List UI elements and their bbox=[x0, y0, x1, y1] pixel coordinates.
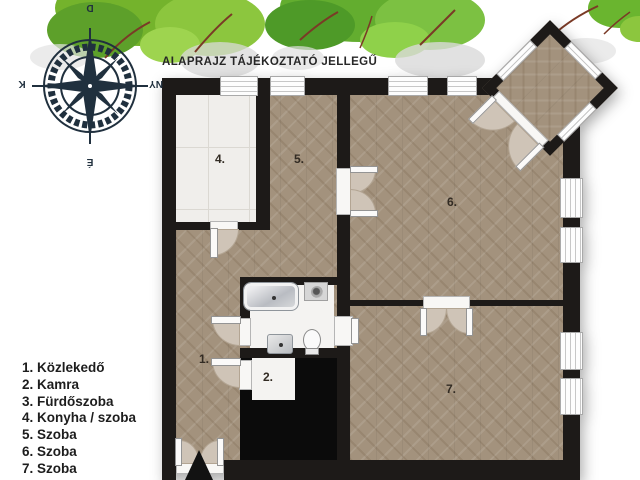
window bbox=[447, 76, 477, 96]
door-leaf bbox=[217, 438, 224, 466]
window bbox=[220, 76, 258, 96]
window bbox=[560, 227, 583, 263]
door-leaf bbox=[350, 210, 378, 217]
door-leaf bbox=[420, 308, 427, 336]
legend-item: 5. Szoba bbox=[22, 427, 136, 444]
door-leaf bbox=[351, 318, 359, 344]
floorplan-page: D NY É K ALAPRAJZ TÁJÉKOZTATÓ JELLEGŰ 1.… bbox=[0, 0, 640, 480]
room-label-1: 1. bbox=[199, 352, 209, 366]
door-leaf bbox=[350, 166, 378, 173]
door-leaf bbox=[210, 228, 218, 258]
compass-rose-icon bbox=[20, 16, 160, 156]
compass-label-south: D bbox=[80, 2, 100, 13]
room-label-2: 2. bbox=[263, 370, 273, 384]
washbasin-icon bbox=[267, 334, 293, 354]
door-leaf bbox=[175, 438, 182, 466]
legend-item: 1. Közlekedő bbox=[22, 360, 136, 377]
room-label-5: 5. bbox=[294, 152, 304, 166]
door-leaf bbox=[211, 358, 241, 366]
page-title: ALAPRAJZ TÁJÉKOZTATÓ JELLEGŰ bbox=[162, 56, 377, 68]
window bbox=[388, 76, 428, 96]
window bbox=[560, 332, 583, 370]
window bbox=[496, 40, 537, 81]
legend-item: 2. Kamra bbox=[22, 377, 136, 394]
entrance-arrow-icon bbox=[185, 450, 213, 480]
window bbox=[564, 41, 602, 79]
room-2-pantry-floor bbox=[252, 358, 295, 400]
wall-room4-bottom bbox=[176, 222, 210, 230]
window bbox=[560, 378, 583, 415]
wall-room4-bottom bbox=[238, 222, 270, 230]
door-leaf bbox=[211, 316, 241, 324]
door-leaf bbox=[466, 308, 473, 336]
room-label-7: 7. bbox=[446, 382, 456, 396]
compass-label-north: É bbox=[80, 156, 100, 167]
compass-label-west: NY bbox=[146, 78, 166, 89]
wall-room5-room6 bbox=[337, 92, 350, 462]
legend-item: 3. Fürdőszoba bbox=[22, 394, 136, 411]
double-door-sill bbox=[336, 168, 351, 215]
wall-room4-room5 bbox=[256, 92, 270, 228]
room-label-4: 4. bbox=[215, 152, 225, 166]
legend-item: 7. Szoba bbox=[22, 461, 136, 478]
bathtub-icon bbox=[244, 283, 298, 310]
legend-item: 6. Szoba bbox=[22, 444, 136, 461]
window bbox=[560, 178, 583, 218]
compass-label-east: K bbox=[12, 78, 32, 89]
wall-bottom bbox=[224, 460, 580, 480]
window bbox=[270, 76, 305, 96]
room-legend: 1. Közlekedő 2. Kamra 3. Fürdőszoba 4. K… bbox=[22, 360, 136, 478]
water-heater-icon bbox=[304, 282, 328, 301]
room-label-6: 6. bbox=[447, 195, 457, 209]
legend-item: 4. Konyha / szoba bbox=[22, 410, 136, 427]
wall-left bbox=[162, 78, 176, 480]
